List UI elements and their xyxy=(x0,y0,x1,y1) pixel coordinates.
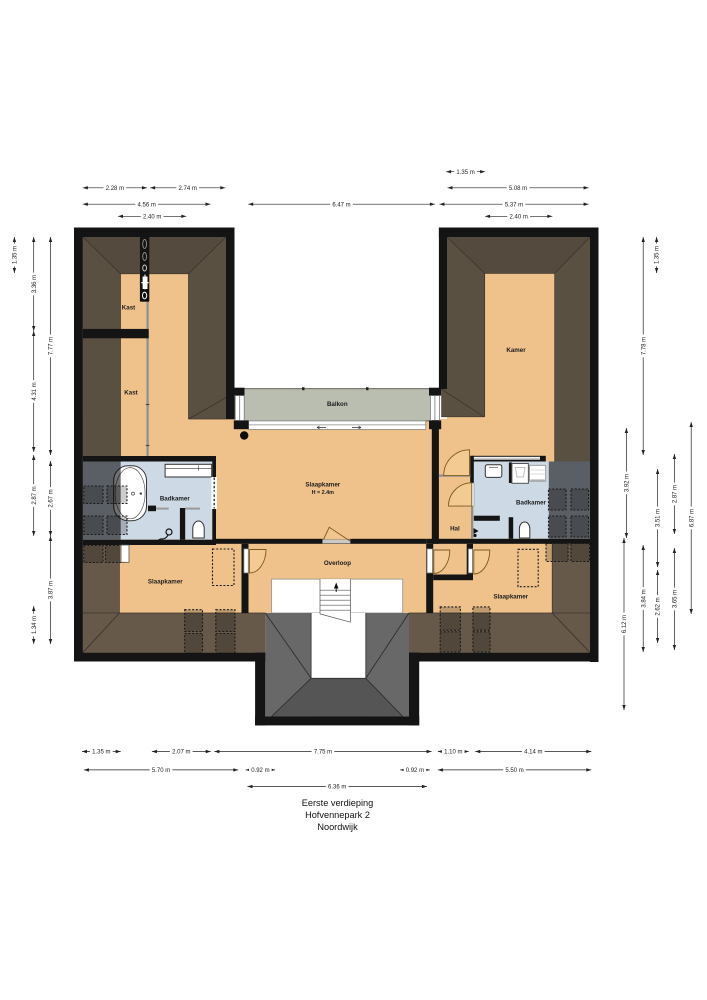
svg-text:H = 2.4m: H = 2.4m xyxy=(312,490,335,496)
svg-text:2.40 m: 2.40 m xyxy=(143,214,161,220)
svg-text:Overloop: Overloop xyxy=(324,560,351,567)
svg-text:7.75 m: 7.75 m xyxy=(314,750,332,756)
svg-text:Hofvennepark 2: Hofvennepark 2 xyxy=(305,810,370,820)
svg-text:1.35 m: 1.35 m xyxy=(13,246,19,264)
svg-text:2.40 m: 2.40 m xyxy=(510,214,528,220)
svg-text:6.47 m: 6.47 m xyxy=(332,202,350,208)
svg-text:6.12 m: 6.12 m xyxy=(622,615,628,633)
svg-text:6.87 m: 6.87 m xyxy=(689,509,695,527)
svg-text:Badkamer: Badkamer xyxy=(160,496,191,503)
svg-text:2.67 m: 2.67 m xyxy=(49,489,55,507)
svg-text:0.92 m: 0.92 m xyxy=(251,768,269,774)
svg-text:2.62 m: 2.62 m xyxy=(656,597,662,615)
svg-text:1.35 m: 1.35 m xyxy=(92,750,110,756)
svg-text:5.37 m: 5.37 m xyxy=(505,202,523,208)
svg-text:0.92 m: 0.92 m xyxy=(406,768,424,774)
svg-text:2.87 m: 2.87 m xyxy=(32,486,38,504)
svg-text:Balkon: Balkon xyxy=(327,401,348,408)
svg-text:2.87 m: 2.87 m xyxy=(673,485,679,503)
svg-text:4.14 m: 4.14 m xyxy=(524,750,542,756)
svg-text:2.28 m: 2.28 m xyxy=(106,186,124,192)
svg-text:4.56 m: 4.56 m xyxy=(138,202,156,208)
svg-text:Badkamer: Badkamer xyxy=(516,500,547,507)
svg-text:2.07 m: 2.07 m xyxy=(172,750,190,756)
svg-text:5.08 m: 5.08 m xyxy=(509,186,527,192)
svg-text:3.84 m: 3.84 m xyxy=(641,589,647,607)
svg-text:Slaapkamer: Slaapkamer xyxy=(493,594,528,601)
svg-text:Eerste verdieping: Eerste verdieping xyxy=(302,798,374,808)
svg-text:Slaapkamer: Slaapkamer xyxy=(305,482,340,489)
svg-text:1.10 m: 1.10 m xyxy=(444,750,462,756)
svg-text:Kast: Kast xyxy=(122,305,135,312)
svg-text:1.35 m: 1.35 m xyxy=(655,246,661,264)
svg-text:2.74 m: 2.74 m xyxy=(179,186,197,192)
svg-text:1.35 m: 1.35 m xyxy=(456,170,474,176)
svg-text:5.70 m: 5.70 m xyxy=(152,768,170,774)
svg-text:3.51 m: 3.51 m xyxy=(656,509,662,527)
svg-text:Kast: Kast xyxy=(124,390,137,397)
svg-text:3.36 m: 3.36 m xyxy=(32,275,38,293)
svg-text:3.92 m: 3.92 m xyxy=(625,474,631,492)
svg-text:4.31 m: 4.31 m xyxy=(32,382,38,400)
svg-text:1.34 m: 1.34 m xyxy=(32,616,38,634)
svg-text:7.77 m: 7.77 m xyxy=(49,337,55,355)
svg-text:5.50 m: 5.50 m xyxy=(505,768,523,774)
svg-text:6.36 m: 6.36 m xyxy=(328,785,346,791)
svg-text:3.87 m: 3.87 m xyxy=(49,581,55,599)
svg-text:7.78 m: 7.78 m xyxy=(641,337,647,355)
svg-text:3.65 m: 3.65 m xyxy=(673,590,679,608)
svg-text:Hal: Hal xyxy=(450,526,460,533)
svg-text:Slaapkamer: Slaapkamer xyxy=(148,579,183,586)
svg-text:Noordwijk: Noordwijk xyxy=(317,822,358,832)
svg-text:Kamer: Kamer xyxy=(506,347,526,354)
